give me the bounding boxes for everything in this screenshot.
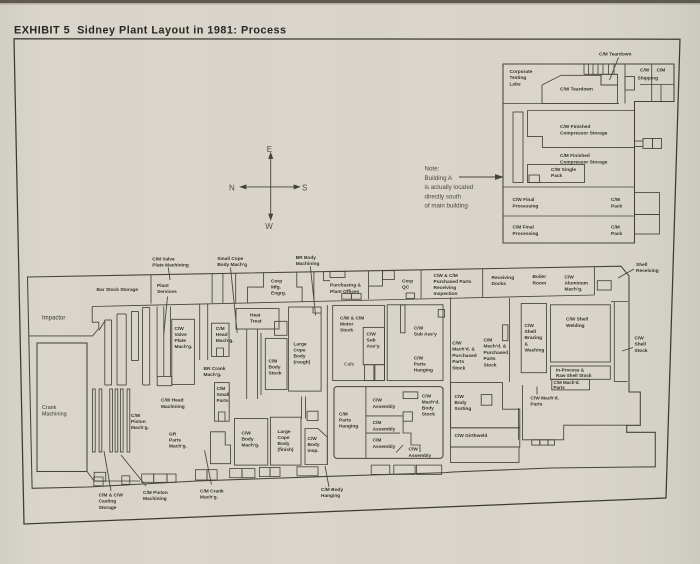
svg-text:Small CopeBody Mach’g: Small CopeBody Mach’g (217, 256, 247, 268)
svg-text:C/W Girthweld: C/W Girthweld (455, 433, 488, 439)
svg-text:Shipping: Shipping (638, 76, 659, 82)
svg-text:EXHIBIT 5 Sidney Plant Layout: EXHIBIT 5 Sidney Plant Layout in 1981: P… (14, 25, 287, 37)
svg-text:C/M Teardown: C/M Teardown (599, 52, 631, 58)
svg-text:Bar Stock Storage: Bar Stock Storage (97, 287, 139, 293)
svg-text:C/M: C/M (657, 68, 666, 74)
svg-text:E: E (267, 145, 272, 154)
svg-text:BR BodyMachining: BR BodyMachining (296, 255, 320, 267)
svg-text:Cafe: Cafe (344, 362, 354, 368)
svg-text:C/W Teardown: C/W Teardown (560, 87, 593, 93)
svg-text:C/W: C/W (640, 68, 650, 74)
svg-text:N: N (229, 183, 235, 192)
svg-text:W: W (265, 222, 273, 231)
svg-text:Impactor: Impactor (42, 316, 65, 322)
svg-text:S: S (302, 183, 307, 192)
